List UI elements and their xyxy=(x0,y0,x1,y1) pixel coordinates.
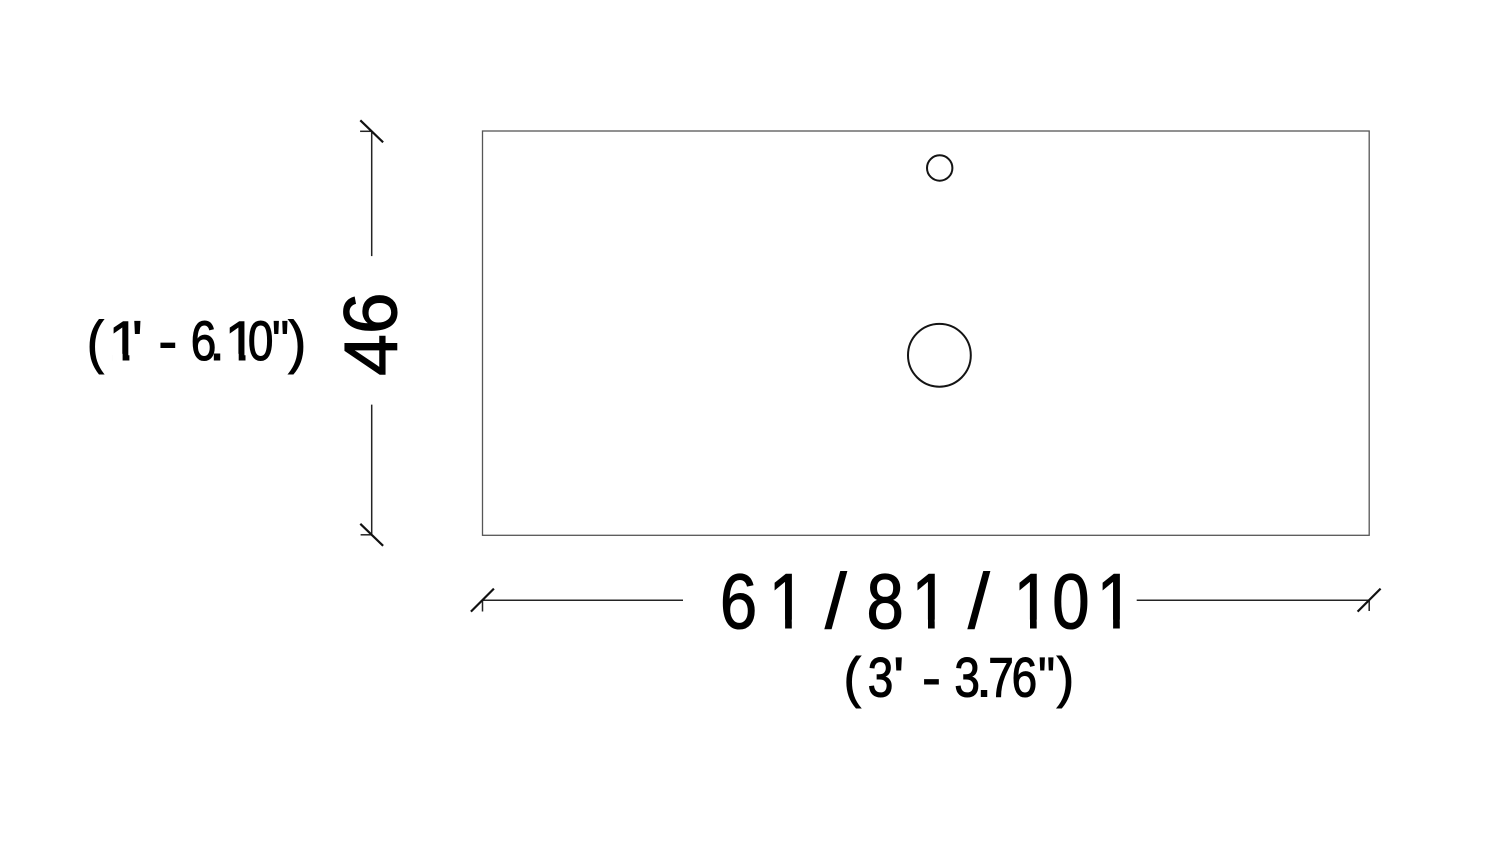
svg-text:1: 1 xyxy=(1014,558,1051,645)
svg-text:1: 1 xyxy=(912,558,949,645)
svg-text:8: 8 xyxy=(867,558,904,645)
svg-text:1: 1 xyxy=(769,558,806,645)
svg-text:): ) xyxy=(1057,647,1074,709)
svg-text:-: - xyxy=(922,646,941,709)
svg-text:/: / xyxy=(825,557,847,645)
svg-text:): ) xyxy=(288,309,306,374)
svg-text:.: . xyxy=(209,309,225,372)
svg-text:6: 6 xyxy=(1012,646,1038,708)
svg-text:": " xyxy=(272,310,289,372)
svg-text:-: - xyxy=(159,309,178,372)
svg-text:": " xyxy=(1038,647,1055,709)
svg-text:': ' xyxy=(893,646,904,709)
svg-text:': ' xyxy=(132,309,143,372)
svg-text:(: ( xyxy=(87,310,104,375)
svg-text:46: 46 xyxy=(329,292,413,375)
svg-text:(: ( xyxy=(844,647,861,709)
svg-text:7: 7 xyxy=(988,646,1014,708)
svg-text:6: 6 xyxy=(720,558,757,645)
svg-text:/: / xyxy=(968,557,990,645)
svg-text:3: 3 xyxy=(868,646,894,708)
svg-text:0: 0 xyxy=(1052,558,1089,645)
svg-text:0: 0 xyxy=(248,310,274,372)
svg-text:1: 1 xyxy=(1097,558,1134,645)
